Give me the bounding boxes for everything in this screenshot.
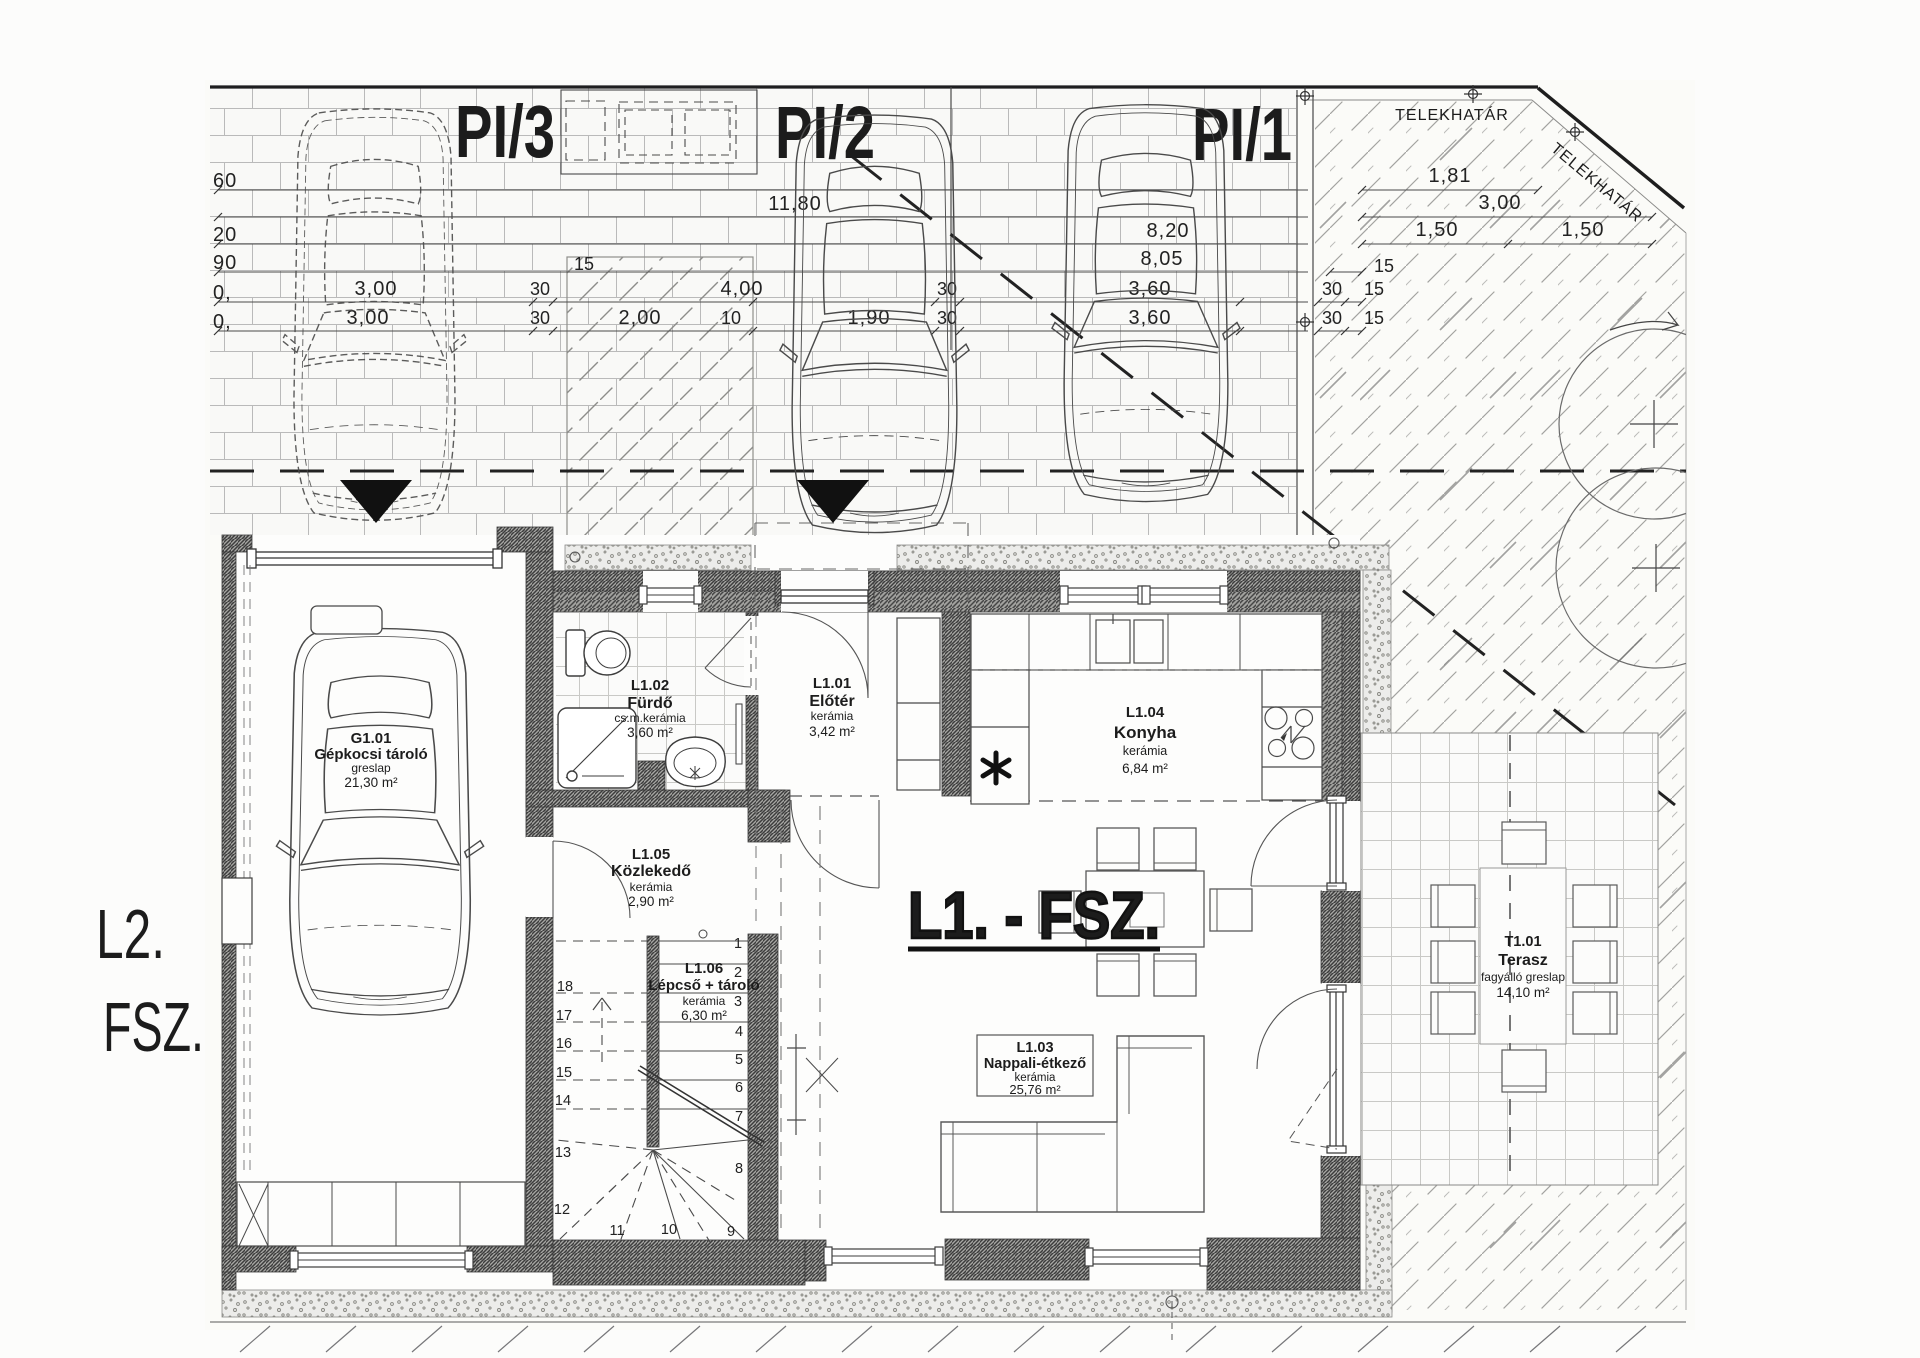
- svg-text:2,90 m²: 2,90 m²: [628, 894, 674, 909]
- svg-text:Előtér: Előtér: [809, 693, 854, 710]
- svg-text:Fürdő: Fürdő: [627, 695, 673, 712]
- svg-text:Terasz: Terasz: [1498, 952, 1548, 969]
- svg-text:L1.06: L1.06: [685, 960, 723, 977]
- svg-text:14,10 m²: 14,10 m²: [1496, 985, 1550, 1000]
- svg-text:PI/1: PI/1: [1192, 93, 1292, 176]
- svg-text:T1.01: T1.01: [1504, 934, 1541, 950]
- svg-text:greslap: greslap: [351, 761, 391, 775]
- svg-text:1,50: 1,50: [1416, 219, 1459, 241]
- svg-text:16: 16: [556, 1036, 572, 1052]
- svg-text:L2.: L2.: [96, 895, 165, 973]
- svg-text:2,00: 2,00: [619, 307, 662, 329]
- svg-text:1,50: 1,50: [1562, 219, 1605, 241]
- svg-text:10: 10: [721, 308, 741, 328]
- svg-text:G1.01: G1.01: [351, 730, 392, 747]
- svg-text:14: 14: [555, 1093, 571, 1109]
- svg-text:Nappali-étkező: Nappali-étkező: [984, 1056, 1086, 1072]
- svg-text:L1. - FSZ.: L1. - FSZ.: [908, 878, 1160, 952]
- svg-text:FSZ.: FSZ.: [103, 988, 204, 1066]
- svg-text:4,00: 4,00: [721, 278, 764, 300]
- svg-text:3,00: 3,00: [347, 307, 390, 329]
- svg-text:1: 1: [734, 936, 742, 952]
- svg-text:L1.02: L1.02: [631, 677, 669, 694]
- svg-text:L1.01: L1.01: [813, 675, 851, 692]
- svg-text:21,30 m²: 21,30 m²: [344, 775, 398, 790]
- svg-text:kerámia: kerámia: [683, 994, 726, 1008]
- svg-text:3,42 m²: 3,42 m²: [809, 724, 855, 739]
- svg-text:30: 30: [530, 279, 550, 299]
- svg-text:8,05: 8,05: [1141, 248, 1184, 270]
- svg-text:Lépcső + tároló: Lépcső + tároló: [648, 977, 759, 994]
- svg-text:90: 90: [213, 252, 237, 274]
- svg-text:6,84 m²: 6,84 m²: [1122, 761, 1168, 776]
- svg-text:15: 15: [556, 1065, 572, 1081]
- svg-text:15: 15: [1374, 256, 1394, 276]
- svg-text:3,60 m²: 3,60 m²: [627, 725, 673, 740]
- svg-text:kerámia: kerámia: [1123, 744, 1168, 758]
- svg-text:25,76 m²: 25,76 m²: [1009, 1082, 1061, 1097]
- svg-text:30: 30: [1322, 308, 1342, 328]
- svg-text:15: 15: [1364, 279, 1384, 299]
- svg-text:7: 7: [735, 1109, 743, 1125]
- svg-text:fagyálló greslap: fagyálló greslap: [1481, 970, 1565, 984]
- svg-text:11: 11: [609, 1223, 624, 1239]
- svg-text:3,00: 3,00: [1479, 192, 1522, 214]
- svg-text:PI/3: PI/3: [455, 90, 555, 173]
- svg-text:kerámia: kerámia: [630, 880, 673, 894]
- svg-text:12: 12: [554, 1202, 570, 1218]
- svg-text:6,30 m²: 6,30 m²: [681, 1008, 727, 1023]
- svg-text:3,60: 3,60: [1129, 278, 1172, 300]
- svg-text:9: 9: [727, 1224, 735, 1240]
- svg-text:L1.05: L1.05: [632, 846, 670, 863]
- svg-text:30: 30: [1322, 279, 1342, 299]
- svg-text:15: 15: [574, 254, 594, 274]
- svg-text:Konyha: Konyha: [1114, 723, 1177, 742]
- svg-text:L1.03: L1.03: [1016, 1040, 1053, 1056]
- svg-text:17: 17: [556, 1008, 572, 1024]
- svg-text:cs.m.kerámia: cs.m.kerámia: [614, 711, 686, 725]
- svg-text:13: 13: [555, 1145, 571, 1161]
- svg-text:3,60: 3,60: [1129, 307, 1172, 329]
- svg-text:4: 4: [735, 1024, 743, 1040]
- svg-text:30: 30: [530, 308, 550, 328]
- svg-text:0,: 0,: [213, 311, 232, 333]
- svg-text:PI/2: PI/2: [775, 91, 875, 174]
- svg-text:kerámia: kerámia: [811, 709, 854, 723]
- svg-text:20: 20: [213, 224, 237, 246]
- svg-text:1,81: 1,81: [1429, 165, 1472, 187]
- svg-text:60: 60: [213, 170, 237, 192]
- svg-text:0,: 0,: [213, 282, 232, 304]
- svg-text:6: 6: [735, 1080, 743, 1096]
- svg-text:TELEKHATÁR: TELEKHATÁR: [1395, 105, 1509, 124]
- svg-text:3,00: 3,00: [355, 278, 398, 300]
- svg-text:10: 10: [661, 1222, 677, 1238]
- svg-text:8,20: 8,20: [1147, 220, 1190, 242]
- svg-text:Közlekedő: Közlekedő: [611, 863, 691, 880]
- svg-text:8: 8: [735, 1161, 743, 1177]
- svg-text:3: 3: [734, 994, 742, 1010]
- svg-text:5: 5: [735, 1052, 743, 1068]
- svg-text:18: 18: [557, 979, 573, 995]
- svg-text:L1.04: L1.04: [1126, 704, 1165, 721]
- svg-text:15: 15: [1364, 308, 1384, 328]
